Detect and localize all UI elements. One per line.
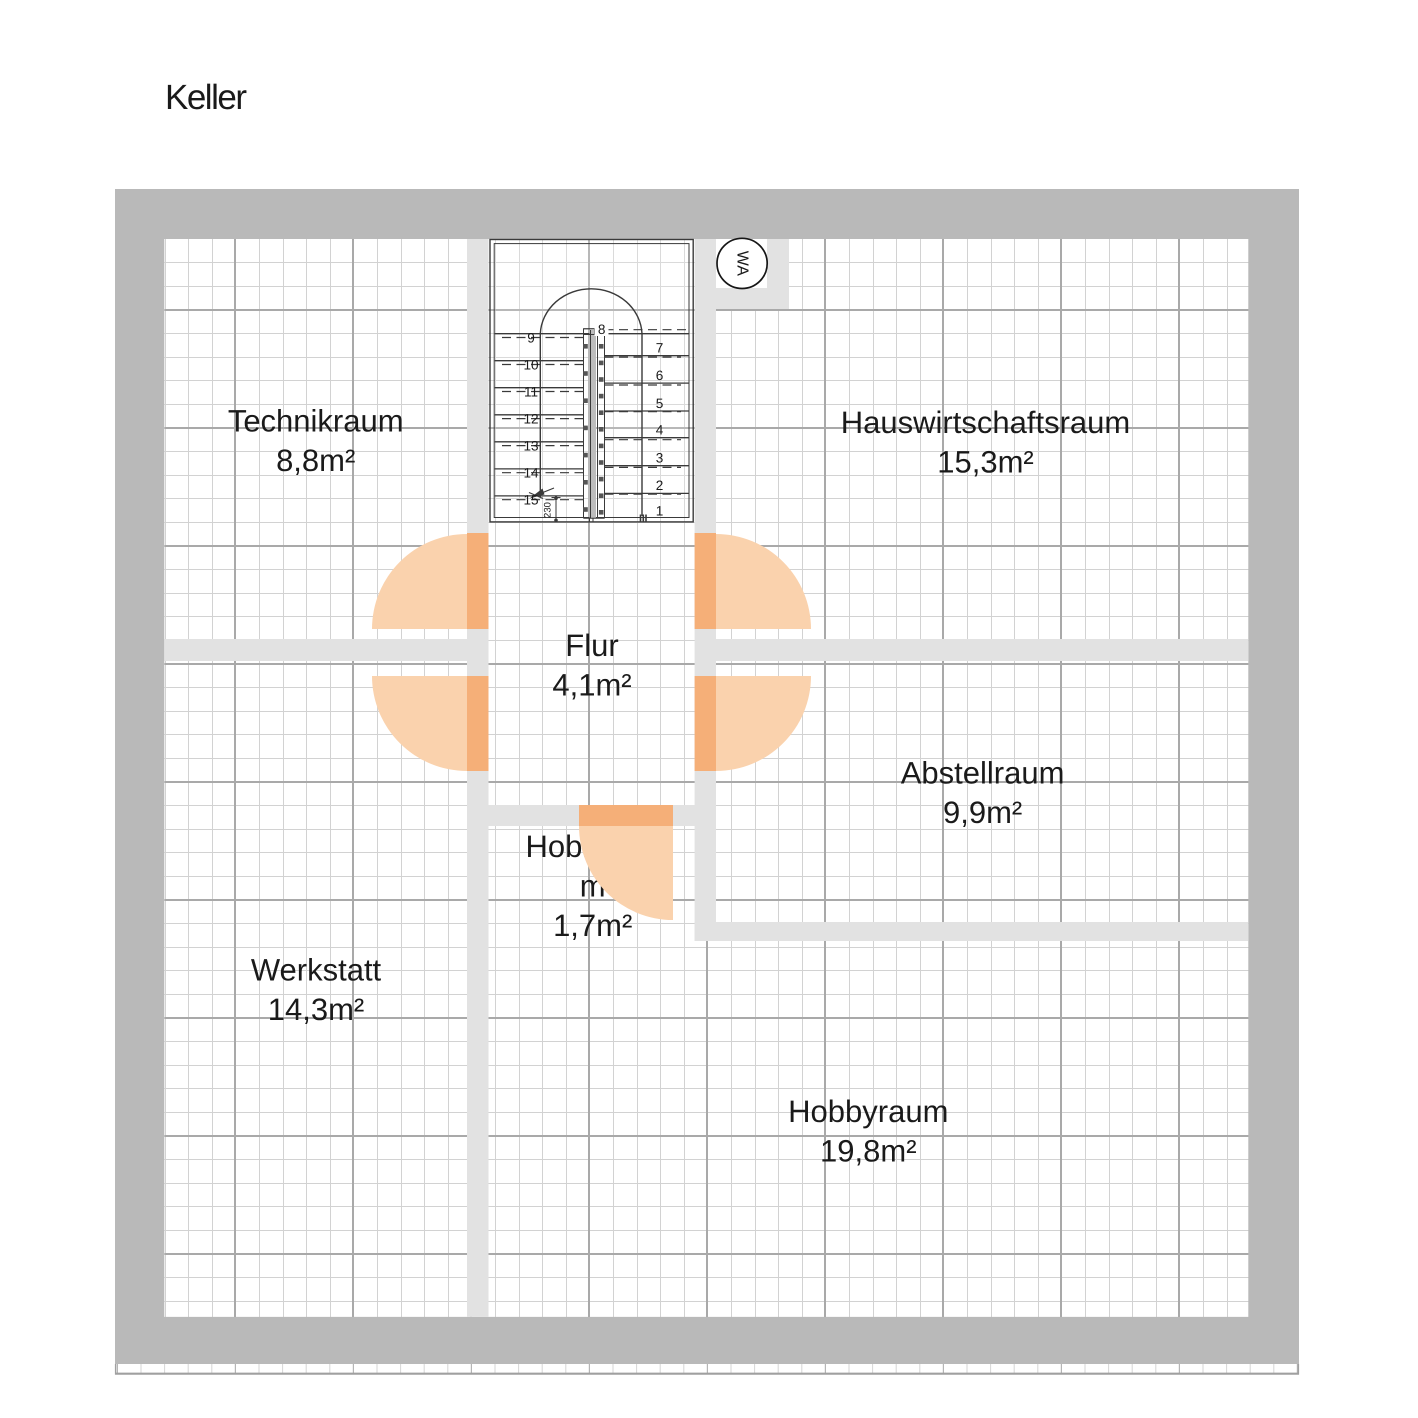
svg-text:Keller: Keller — [165, 78, 247, 117]
svg-text:13: 13 — [523, 438, 538, 453]
svg-text:WA: WA — [734, 251, 751, 277]
svg-text:4,1m²: 4,1m² — [552, 668, 631, 703]
svg-text:7: 7 — [656, 341, 664, 356]
svg-text:1,7m²: 1,7m² — [553, 908, 632, 943]
svg-text:9,9m²: 9,9m² — [943, 795, 1022, 830]
svg-text:10: 10 — [523, 357, 539, 372]
svg-text:14,3m²: 14,3m² — [268, 992, 364, 1027]
svg-text:3: 3 — [656, 451, 664, 466]
svg-text:8: 8 — [598, 322, 606, 337]
svg-text:2: 2 — [656, 478, 664, 493]
svg-text:Flur: Flur — [565, 628, 618, 663]
svg-text:Hauswirtschaftsraum: Hauswirtschaftsraum — [841, 405, 1130, 440]
svg-text:9: 9 — [527, 330, 535, 345]
svg-text:11: 11 — [524, 384, 538, 399]
svg-text:230: 230 — [542, 502, 553, 518]
svg-text:5: 5 — [656, 396, 664, 411]
svg-text:19,8m²: 19,8m² — [820, 1134, 916, 1169]
svg-text:Hobbyraum: Hobbyraum — [788, 1094, 948, 1129]
svg-text:15: 15 — [523, 493, 538, 508]
svg-text:8,8m²: 8,8m² — [276, 443, 355, 478]
svg-text:1: 1 — [656, 503, 664, 518]
svg-text:12: 12 — [523, 411, 538, 426]
svg-text:14: 14 — [523, 466, 539, 481]
svg-text:Werkstatt: Werkstatt — [251, 952, 382, 987]
svg-text:Technikraum: Technikraum — [228, 404, 404, 439]
svg-text:Abstellraum: Abstellraum — [901, 756, 1065, 791]
svg-text:6: 6 — [656, 368, 664, 383]
svg-text:15,3m²: 15,3m² — [937, 445, 1033, 480]
svg-text:4: 4 — [656, 423, 664, 438]
